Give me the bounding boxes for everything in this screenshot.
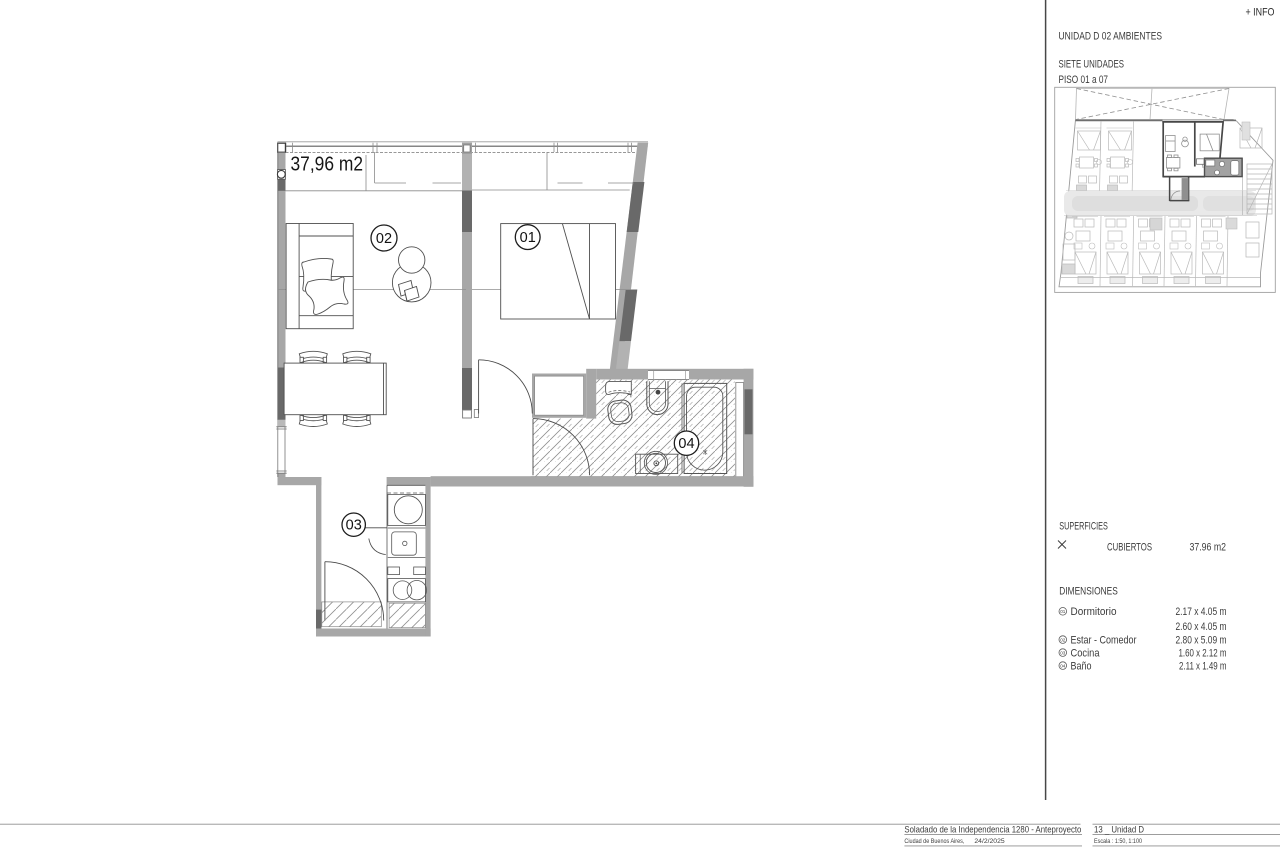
svg-text:2.17 x 4.05 m: 2.17 x 4.05 m — [1176, 606, 1227, 618]
svg-text:24/2/2025: 24/2/2025 — [974, 838, 1004, 845]
svg-text:SUPERFICIES: SUPERFICIES — [1059, 521, 1108, 533]
svg-text:37.96 m2: 37.96 m2 — [1190, 542, 1227, 554]
svg-text:13 _ Unidad D: 13 _ Unidad D — [1094, 824, 1144, 834]
svg-text:+ INFO: + INFO — [1246, 7, 1275, 19]
svg-text:04: 04 — [1060, 663, 1066, 668]
svg-text:Dormitorio: Dormitorio — [1071, 606, 1117, 618]
svg-text:03: 03 — [1060, 650, 1066, 655]
svg-text:03: 03 — [346, 518, 362, 534]
svg-text:Cocina: Cocina — [1071, 648, 1100, 660]
svg-text:2.80 x 5.09 m: 2.80 x 5.09 m — [1176, 635, 1227, 647]
svg-text:UNIDAD D 02 AMBIENTES: UNIDAD D 02 AMBIENTES — [1059, 31, 1163, 43]
svg-text:Escala : 1:50, 1:100: Escala : 1:50, 1:100 — [1094, 838, 1142, 845]
svg-text:SIETE UNIDADES: SIETE UNIDADES — [1059, 59, 1125, 71]
svg-text:PISO 01 a 07: PISO 01 a 07 — [1059, 74, 1109, 86]
svg-text:DIMENSIONES: DIMENSIONES — [1059, 586, 1118, 598]
svg-text:02: 02 — [1060, 637, 1066, 642]
svg-text:Soladado de la Independencia 1: Soladado de la Independencia 1280 - Ante… — [904, 824, 1081, 834]
svg-text:37,96 m2: 37,96 m2 — [291, 153, 364, 176]
svg-text:CUBIERTOS: CUBIERTOS — [1107, 542, 1152, 554]
svg-text:Ciudad de Buenos Aires,: Ciudad de Buenos Aires, — [904, 838, 964, 845]
svg-text:2.60 x 4.05 m: 2.60 x 4.05 m — [1176, 621, 1227, 633]
svg-text:Estar - Comedor: Estar - Comedor — [1071, 635, 1137, 647]
svg-text:Baño: Baño — [1071, 661, 1092, 673]
svg-text:02: 02 — [376, 231, 392, 247]
svg-text:01: 01 — [520, 230, 536, 246]
svg-text:2.11 x 1.49 m: 2.11 x 1.49 m — [1179, 661, 1227, 673]
svg-text:04: 04 — [678, 436, 694, 452]
svg-text:01: 01 — [1060, 609, 1066, 614]
svg-text:1.60 x 2.12 m: 1.60 x 2.12 m — [1179, 648, 1227, 660]
